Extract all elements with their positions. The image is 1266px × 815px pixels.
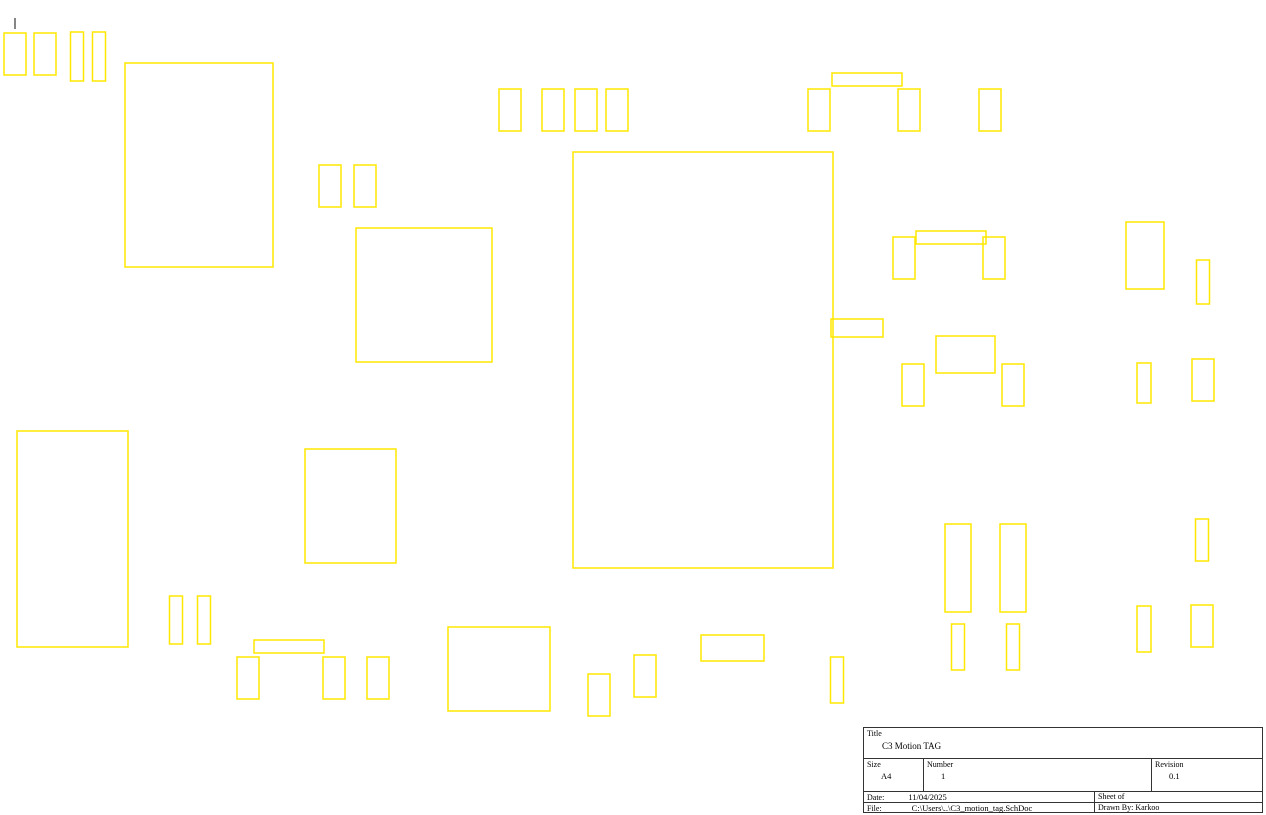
sheet-cell: Sheet of	[1094, 792, 1264, 802]
selection-highlights	[4, 32, 1214, 716]
revision-value: 0.1	[1155, 769, 1261, 781]
size-cell: Size A4	[864, 759, 923, 791]
sheet-label: Sheet of	[1098, 792, 1124, 801]
file-cell: File: C:\Users\..\C3_motion_tag.SchDoc	[864, 803, 1094, 812]
title-row: Title C3 Motion TAG	[864, 728, 1262, 758]
number-value: 1	[927, 769, 1148, 781]
date-value: 11/04/2025	[886, 792, 946, 802]
size-value: A4	[867, 769, 920, 781]
revision-cell: Revision 0.1	[1151, 759, 1264, 791]
schematic-canvas[interactable]	[0, 0, 1266, 815]
title-label: Title	[867, 729, 882, 738]
date-cell: Date: 11/04/2025	[864, 792, 1094, 802]
drawnby-cell: Drawn By: Karkoo	[1094, 803, 1264, 812]
number-label: Number	[927, 760, 1148, 769]
sheet-title: C3 Motion TAG	[882, 741, 941, 751]
revision-label: Revision	[1155, 760, 1261, 769]
date-label: Date:	[867, 793, 884, 802]
file-value: C:\Users\..\C3_motion_tag.SchDoc	[884, 803, 1033, 813]
size-label: Size	[867, 760, 920, 769]
number-cell: Number 1	[923, 759, 1151, 791]
drawnby-value: Drawn By: Karkoo	[1098, 803, 1159, 812]
title-block: Title C3 Motion TAG Size A4 Number 1 Rev…	[863, 727, 1263, 813]
file-label: File:	[867, 804, 882, 813]
